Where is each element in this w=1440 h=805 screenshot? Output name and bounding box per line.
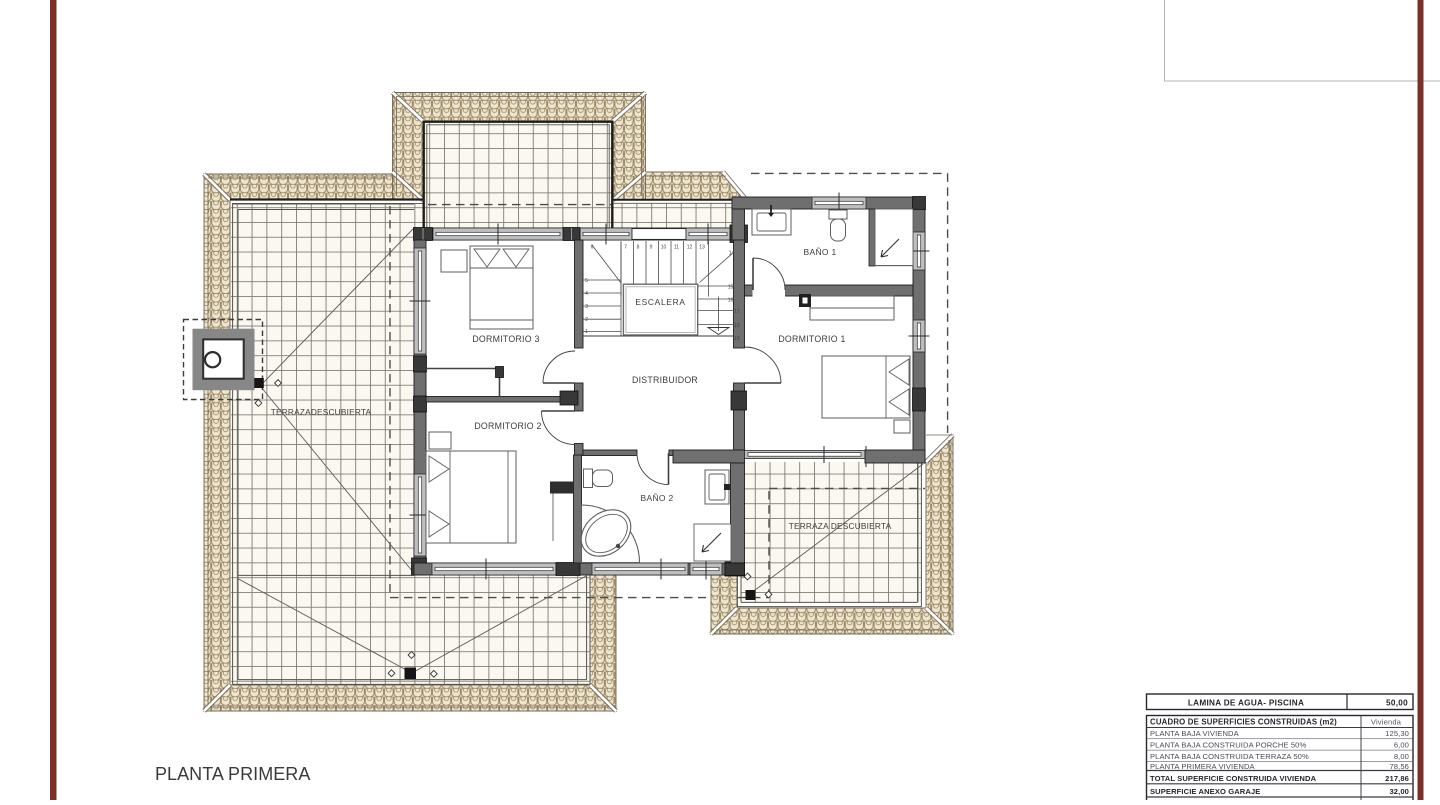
svg-text:PLANTA PRIMERA: PLANTA PRIMERA bbox=[155, 764, 310, 784]
svg-text:9: 9 bbox=[650, 245, 653, 251]
svg-text:TOTAL SUPERFICIE CONSTRUIDA VI: TOTAL SUPERFICIE CONSTRUIDA VIVIENDA bbox=[1150, 774, 1317, 783]
svg-text:50,00: 50,00 bbox=[1386, 699, 1408, 708]
svg-text:DORMITORIO 3: DORMITORIO 3 bbox=[472, 334, 539, 344]
svg-text:3: 3 bbox=[585, 304, 588, 310]
svg-text:PLANTA BAJA CONSTRUIDA TERRAZA: PLANTA BAJA CONSTRUIDA TERRAZA 50% bbox=[1150, 752, 1309, 761]
svg-text:PLANTA BAJA VIVIENDA: PLANTA BAJA VIVIENDA bbox=[1150, 729, 1240, 738]
svg-text:4: 4 bbox=[585, 291, 588, 297]
svg-text:Vivienda: Vivienda bbox=[1371, 718, 1402, 727]
svg-text:BAÑO 1: BAÑO 1 bbox=[804, 247, 837, 257]
svg-text:PLANTA BAJA CONSTRUIDA PORCHE: PLANTA BAJA CONSTRUIDA PORCHE 50% bbox=[1150, 741, 1306, 750]
svg-text:6,00: 6,00 bbox=[1394, 741, 1409, 750]
svg-text:13: 13 bbox=[699, 245, 705, 251]
svg-text:78,56: 78,56 bbox=[1389, 762, 1409, 771]
svg-text:2: 2 bbox=[585, 317, 588, 323]
svg-text:15: 15 bbox=[728, 285, 734, 291]
svg-text:16: 16 bbox=[728, 298, 734, 304]
svg-text:TERRAZADESCUBIERTA: TERRAZADESCUBIERTA bbox=[271, 407, 372, 417]
svg-text:PLANTA PRIMERA VIVIENDA: PLANTA PRIMERA VIVIENDA bbox=[1150, 762, 1256, 771]
svg-text:32,00: 32,00 bbox=[1389, 787, 1409, 796]
svg-text:125,30: 125,30 bbox=[1385, 729, 1409, 738]
svg-text:12: 12 bbox=[687, 245, 693, 251]
svg-text:5: 5 bbox=[585, 278, 588, 284]
svg-text:10: 10 bbox=[661, 245, 667, 251]
svg-text:DORMITORIO 2: DORMITORIO 2 bbox=[474, 421, 541, 431]
svg-text:1: 1 bbox=[585, 329, 588, 335]
svg-text:11: 11 bbox=[674, 245, 679, 251]
svg-text:8: 8 bbox=[637, 245, 640, 251]
svg-text:19: 19 bbox=[734, 336, 740, 342]
svg-text:7: 7 bbox=[624, 245, 627, 251]
svg-text:DORMITORIO 1: DORMITORIO 1 bbox=[778, 334, 845, 344]
svg-text:ESCALERA: ESCALERA bbox=[635, 297, 685, 307]
svg-text:LAMINA DE AGUA- PISCINA: LAMINA DE AGUA- PISCINA bbox=[1188, 699, 1304, 708]
svg-text:BAÑO 2: BAÑO 2 bbox=[641, 493, 674, 503]
svg-text:17: 17 bbox=[734, 309, 740, 315]
svg-text:217,86: 217,86 bbox=[1385, 774, 1409, 783]
svg-text:6: 6 bbox=[591, 245, 594, 251]
svg-text:CUADRO DE SUPERFICIES CONSTRUI: CUADRO DE SUPERFICIES CONSTRUIDAS (m2) bbox=[1150, 718, 1337, 727]
svg-text:8,00: 8,00 bbox=[1394, 752, 1409, 761]
svg-text:DISTRIBUIDOR: DISTRIBUIDOR bbox=[632, 375, 698, 385]
svg-text:TERRAZA DESCUBIERTA: TERRAZA DESCUBIERTA bbox=[789, 521, 892, 531]
svg-text:SUPERFICIE ANEXO GARAJE: SUPERFICIE ANEXO GARAJE bbox=[1150, 787, 1260, 796]
svg-text:18: 18 bbox=[734, 323, 740, 329]
svg-text:14: 14 bbox=[729, 251, 735, 257]
